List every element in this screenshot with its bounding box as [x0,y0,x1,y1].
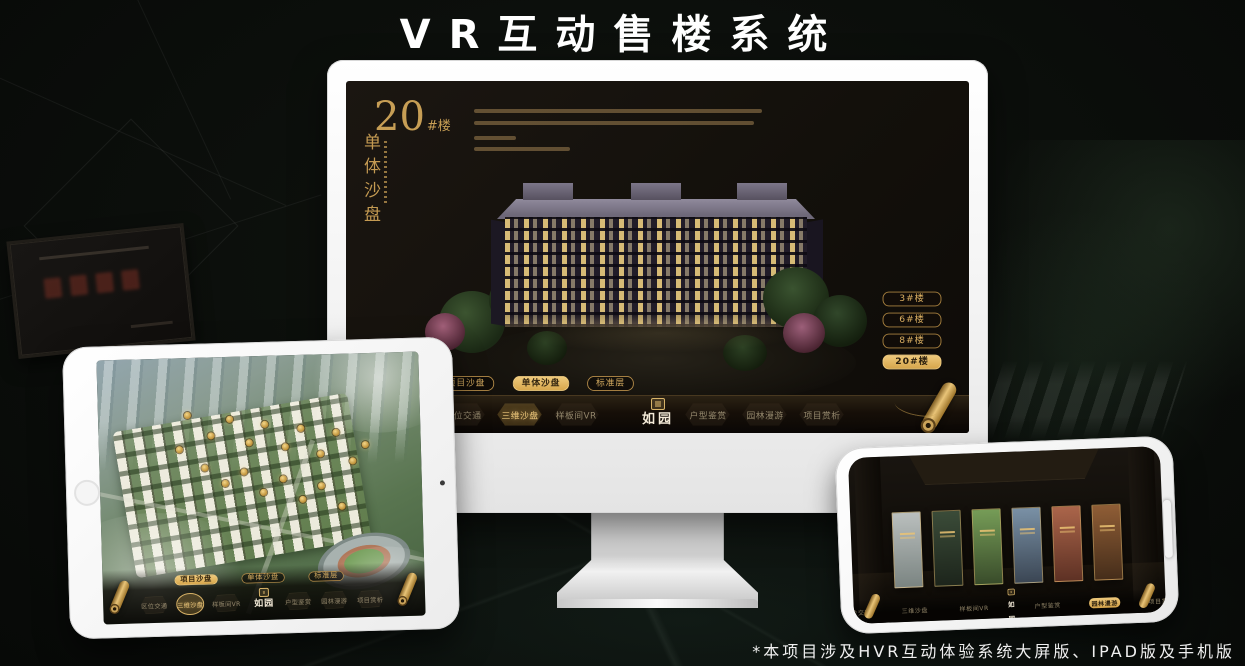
courtyard-gate-silhouette [909,448,1100,485]
ipad-nav-row: 区位交通三维沙盘样板间VR 如园 户型鉴赏园林漫游项目赏析 [103,585,426,620]
building-marker[interactable] [297,425,304,432]
nav-item[interactable]: 三维沙盘 [173,594,208,615]
sub-tab[interactable]: 标准层 [587,376,634,391]
nav-item[interactable]: 户型鉴赏 [1032,599,1064,610]
roof-tower [631,183,681,200]
gallery-panel[interactable] [1091,504,1123,581]
seal-icon [651,398,665,410]
scroll-menu-icon[interactable] [920,380,959,433]
nav-group-right: 户型鉴赏园林漫游项目赏析 [680,402,849,427]
building-suffix: #楼 [427,119,451,134]
nav-group-left: 区位交通三维沙盘样板间VR [137,593,244,616]
gallery-panel[interactable] [932,510,964,587]
footnote-text: *本项目涉及HVR互动体验系统大屏版、IPAD版及手机版 [752,638,1235,662]
scene-gallery [892,504,1124,589]
building-marker[interactable] [338,503,345,510]
sub-tab[interactable]: 标准层 [308,571,344,582]
nav-item[interactable]: 项目赏析 [353,589,388,610]
brand-logo[interactable]: 如园 [250,588,279,611]
seal-icon [259,588,269,597]
nav-item[interactable]: 园林漫游 [737,402,792,427]
floor-button[interactable]: 3#楼 [883,292,942,307]
sub-tab[interactable]: 单体沙盘 [241,572,284,583]
building-roof [497,199,815,219]
nav-item[interactable]: 样板间VR [209,593,244,614]
scroll-menu-icon-left[interactable] [109,579,130,612]
ground-glow [521,313,801,353]
nav-item[interactable]: 样板间VR [957,602,991,614]
award-plaque [6,223,195,359]
roof-tower [523,183,573,200]
nav-item[interactable]: 园林漫游 [317,590,352,611]
plaque-signature [131,321,173,328]
nav-item[interactable]: 户型鉴赏 [281,591,316,612]
ipad-screen: 项目沙盘单体沙盘标准层 区位交通三维沙盘样板间VR 如园 户型鉴赏园林漫游项目赏… [96,352,425,625]
plaque-line [39,246,149,260]
building-label: 20#楼 [374,97,451,137]
ipad-navbar: 项目沙盘单体沙盘标准层 区位交通三维沙盘样板间VR 如园 户型鉴赏园林漫游项目赏… [102,561,425,624]
smartphone: 区位交通 三维沙盘 样板间VR 如园 户型鉴赏 园林漫游 项目赏析 [835,436,1180,635]
scroll-menu-icon-right[interactable] [397,571,418,604]
camera-icon [440,480,445,485]
gallery-panel[interactable] [1011,507,1043,584]
gallery-panel[interactable] [1051,506,1083,583]
page-title: VR互动售楼系统 [0,2,1245,60]
nav-item[interactable]: 样板间VR [549,402,604,427]
brand-logo-text: 如园 [250,598,278,611]
brand-logo[interactable]: 如园 [637,398,679,429]
floor-button[interactable]: 20#楼 [883,355,942,370]
building-facade-windows [505,217,807,327]
nav-item[interactable]: 区位交通 [137,595,172,616]
nav-item[interactable]: 项目赏析 [794,402,849,427]
ipad-tablet: 项目沙盘单体沙盘标准层 区位交通三维沙盘样板间VR 如园 户型鉴赏园林漫游项目赏… [62,337,460,640]
building-marker[interactable] [221,480,228,487]
nav-group-left: 区位交通三维沙盘样板间VR [435,402,604,427]
nav-item[interactable]: 户型鉴赏 [680,402,735,427]
building-subtitle-latin [384,139,387,203]
seal-icon [1008,589,1015,596]
nav-item[interactable]: 三维沙盘 [899,604,931,615]
roof-tower [737,183,787,200]
view-sub-tabs: 项目沙盘单体沙盘标准层 [434,375,637,392]
brand-logo-text: 如园 [637,411,679,429]
description-text-lines [474,109,794,159]
sub-tab[interactable]: 项目沙盘 [174,574,217,585]
gallery-panel[interactable] [972,509,1004,586]
phone-screen: 区位交通 三维沙盘 样板间VR 如园 户型鉴赏 园林漫游 项目赏析 [848,446,1166,624]
floor-button[interactable]: 8#楼 [883,334,942,349]
floor-button-group: 3#楼6#楼8#楼20#楼 [880,291,944,370]
nav-item[interactable]: 园林漫游 [1089,597,1121,608]
ipad-sub-tabs: 项目沙盘单体沙盘标准层 [174,568,357,587]
building-marker[interactable] [207,432,214,439]
stage: VR互动售楼系统 20#楼 单体沙盘 [0,0,1245,666]
building-subtitle: 单体沙盘 [358,133,383,265]
gallery-panel[interactable] [892,512,924,589]
sub-tab[interactable]: 单体沙盘 [513,376,569,391]
nav-item[interactable]: 三维沙盘 [492,402,547,427]
plaque-calligraphy [43,269,140,299]
building-marker[interactable] [279,475,286,482]
nav-group-right: 户型鉴赏园林漫游项目赏析 [281,589,388,612]
floor-button[interactable]: 6#楼 [883,313,942,328]
